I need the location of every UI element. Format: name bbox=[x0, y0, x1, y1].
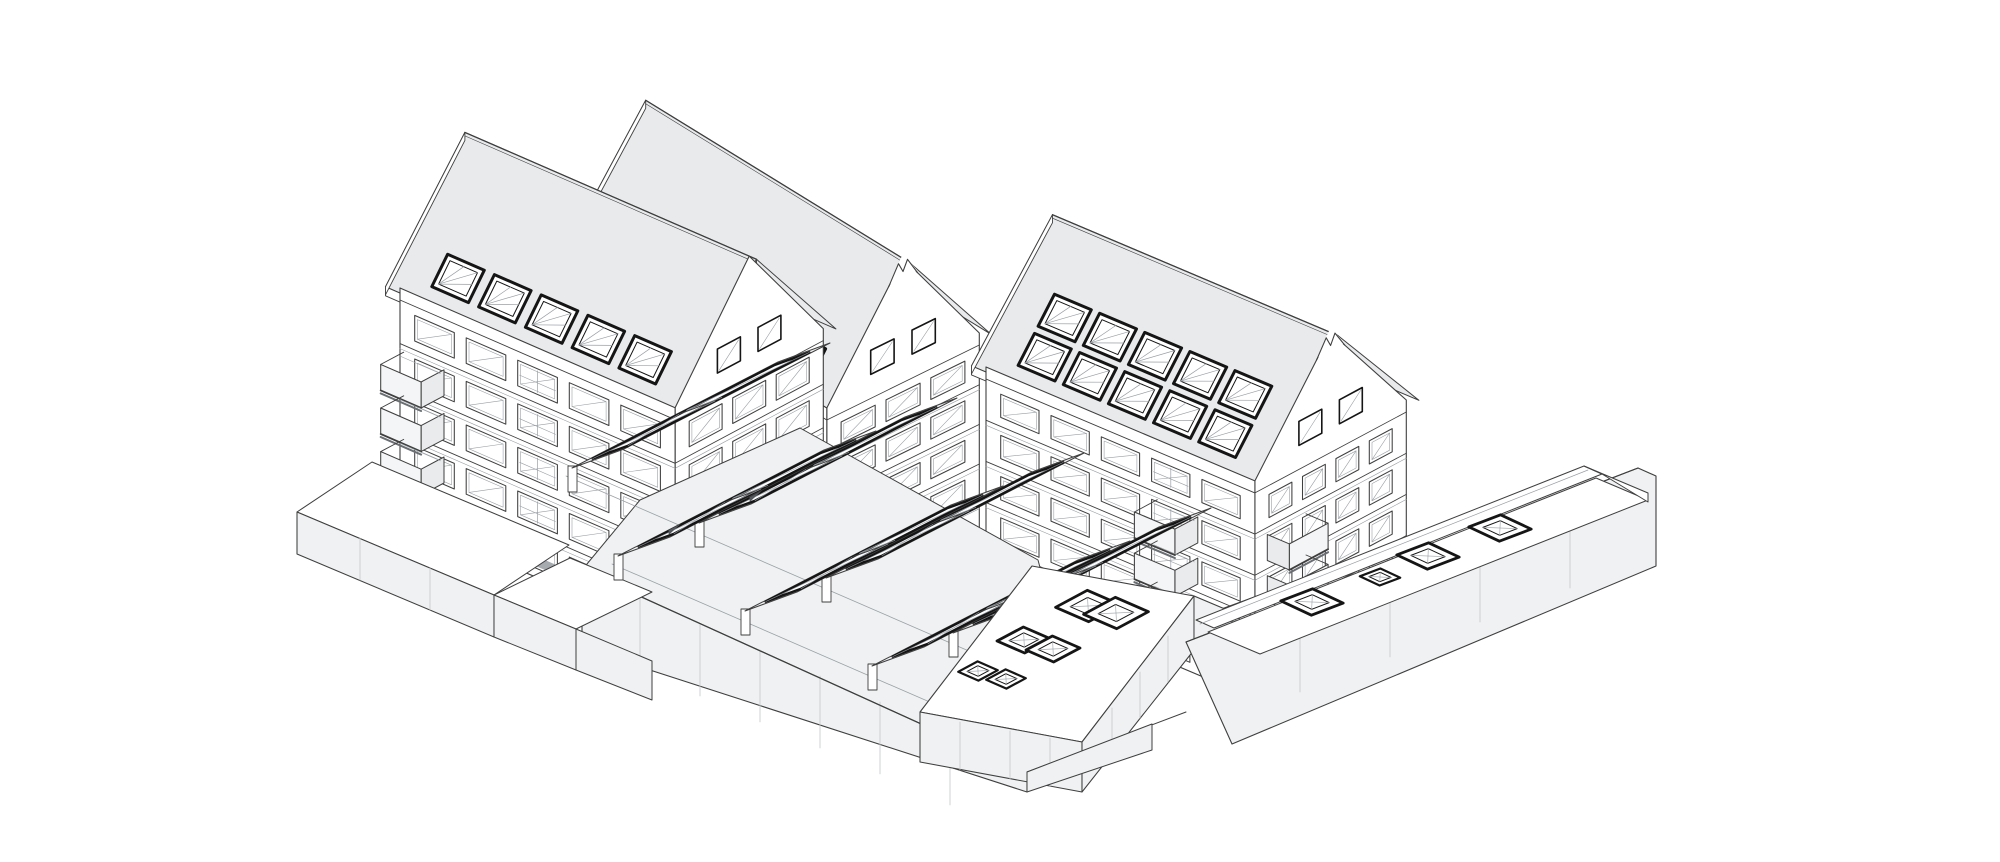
architecture-drawing bbox=[0, 0, 2000, 862]
axonometric-scene bbox=[0, 0, 2000, 862]
